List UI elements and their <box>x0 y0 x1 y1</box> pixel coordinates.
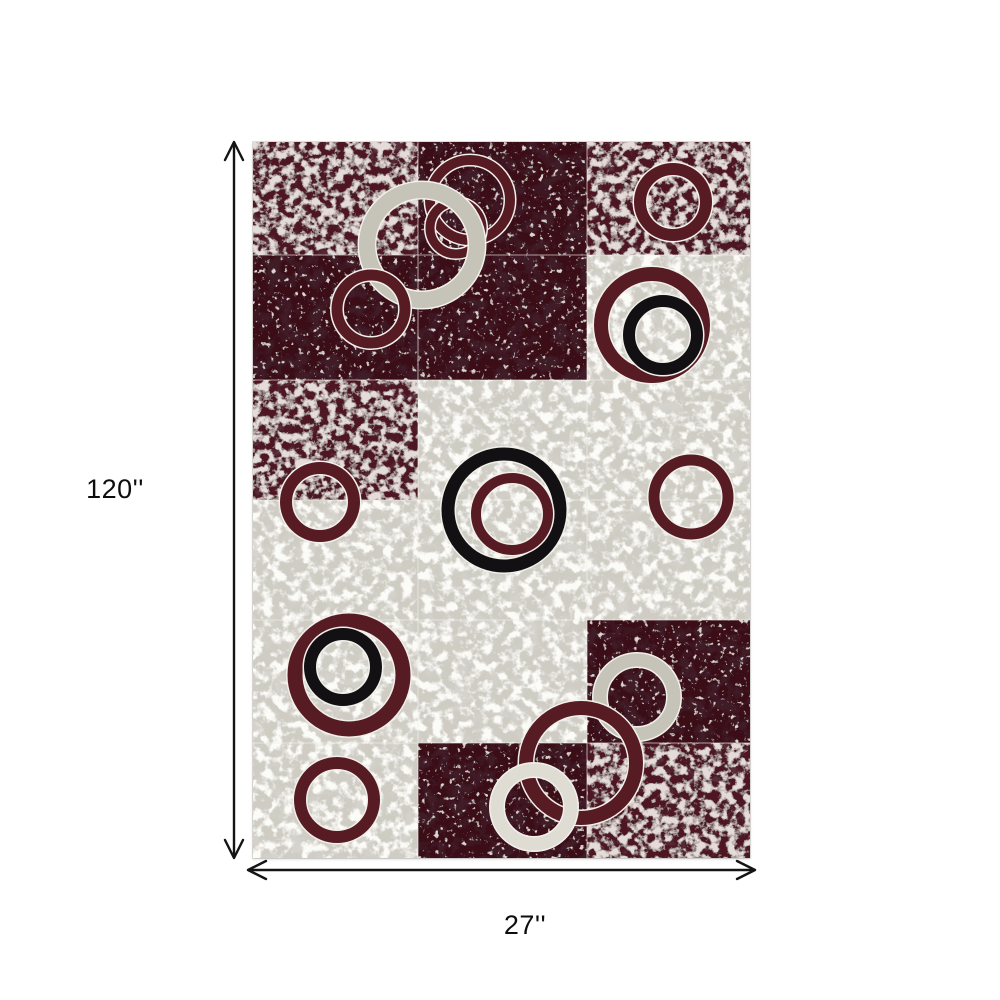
width-dimension-label: 27'' <box>475 910 575 941</box>
product-dimension-diagram: 120'' 27'' <box>0 0 1000 1000</box>
rug-image <box>253 142 750 858</box>
horizontal-dimension-arrow <box>248 861 755 879</box>
rug-block <box>418 255 587 380</box>
vertical-dimension-arrow <box>225 142 243 858</box>
rug-block <box>253 380 418 500</box>
rug-block <box>253 500 418 620</box>
rug-block <box>418 620 587 743</box>
height-dimension-label: 120'' <box>60 474 170 505</box>
